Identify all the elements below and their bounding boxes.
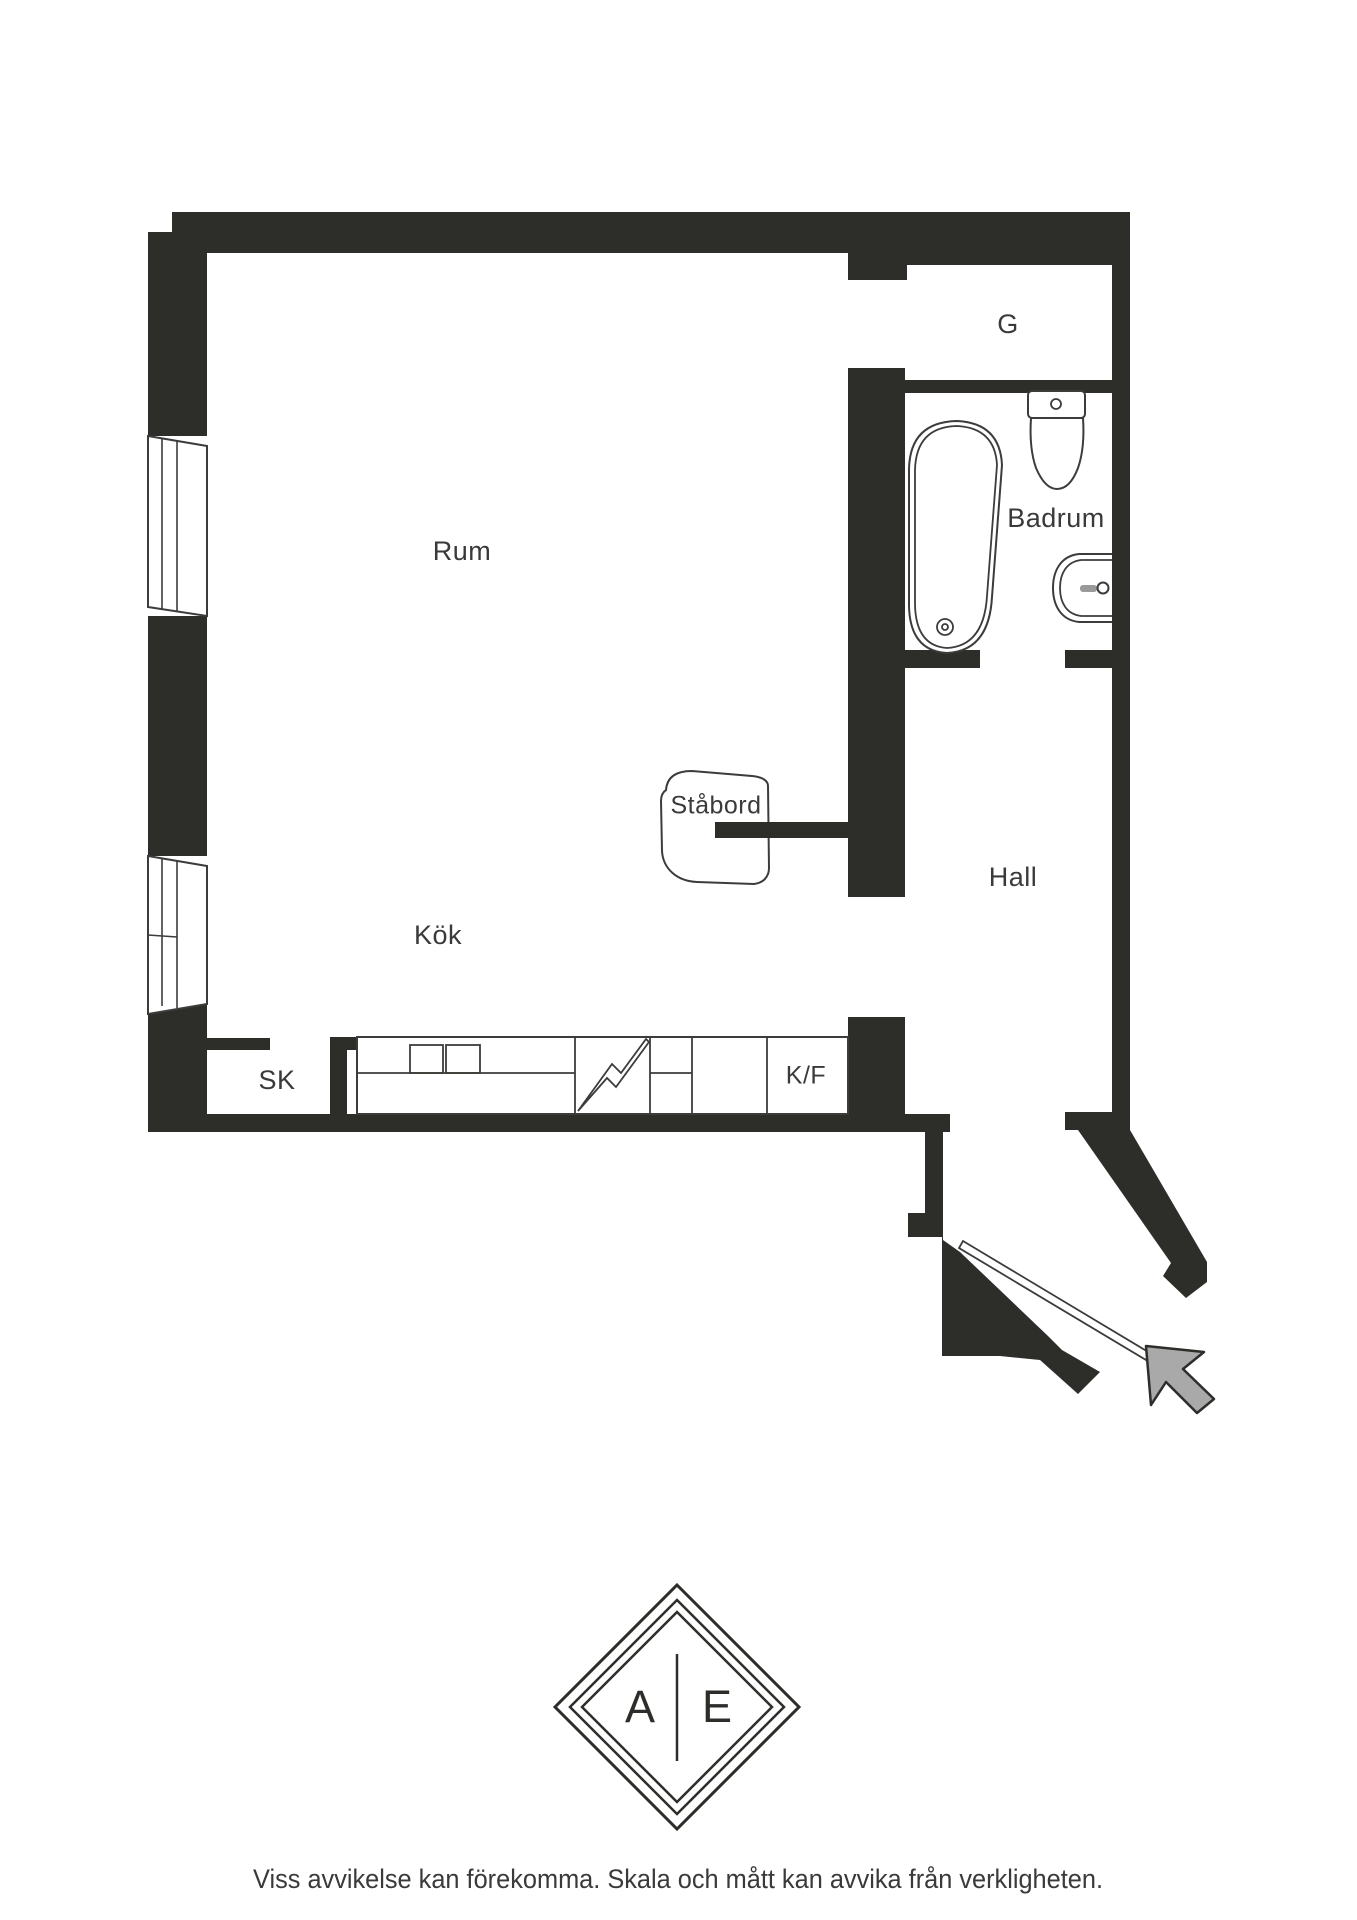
floor-plan-page: Rum Kök Badrum Hall G SK K/F Ståbord A E…: [0, 0, 1357, 1920]
entrance-arrow-icon: [1146, 1346, 1214, 1413]
wall-bottom: [148, 1114, 950, 1132]
label-hall: Hall: [989, 862, 1038, 892]
logo-letter-left: A: [625, 1681, 655, 1732]
agency-logo: A E: [555, 1585, 799, 1829]
kitchen-counter-outline: [357, 1037, 848, 1114]
sink-faucet-knob-icon: [1098, 583, 1109, 594]
sink-faucet-icon: [1080, 585, 1097, 592]
wall-top: [148, 212, 1130, 280]
wall-right: [1112, 212, 1130, 1130]
wall-stabord-stub: [715, 822, 850, 838]
label-kok: Kök: [414, 920, 462, 950]
label-badrum: Badrum: [1007, 503, 1105, 533]
wall-entrance-left: [908, 1130, 1100, 1394]
disclaimer-text: Viss avvikelse kan förekomma. Skala och …: [253, 1864, 1103, 1894]
wall-kitchen-hall: [848, 1017, 905, 1132]
wall-entrance-diagonal-right: [1078, 1130, 1207, 1298]
kitchen-counter: [357, 1037, 848, 1114]
logo-letter-right: E: [702, 1681, 732, 1732]
wall-central-column: [848, 368, 905, 897]
wall-hall-stub: [1065, 1112, 1112, 1130]
standing-table: [661, 771, 850, 884]
wall-sk-flange: [347, 1037, 357, 1050]
floor-plan-drawing: Rum Kök Badrum Hall G SK K/F Ståbord A E…: [0, 0, 1357, 1920]
wall-left-lower: [148, 1004, 207, 1132]
label-rum: Rum: [433, 536, 492, 566]
wall-sk-top: [207, 1038, 270, 1050]
wall-sk-right: [330, 1037, 347, 1114]
label-stabord: Ståbord: [670, 792, 761, 820]
bathtub-icon: [909, 421, 1002, 653]
label-garderob: G: [997, 309, 1019, 339]
wall-bathroom-door-right: [1065, 650, 1112, 668]
toilet-tank-icon: [1028, 391, 1085, 418]
label-kf: K/F: [786, 1062, 826, 1090]
label-sk: SK: [258, 1065, 295, 1095]
wall-left-upper: [148, 232, 207, 436]
toilet-bowl-icon: [1031, 418, 1084, 489]
wall-left-middle: [148, 616, 207, 856]
